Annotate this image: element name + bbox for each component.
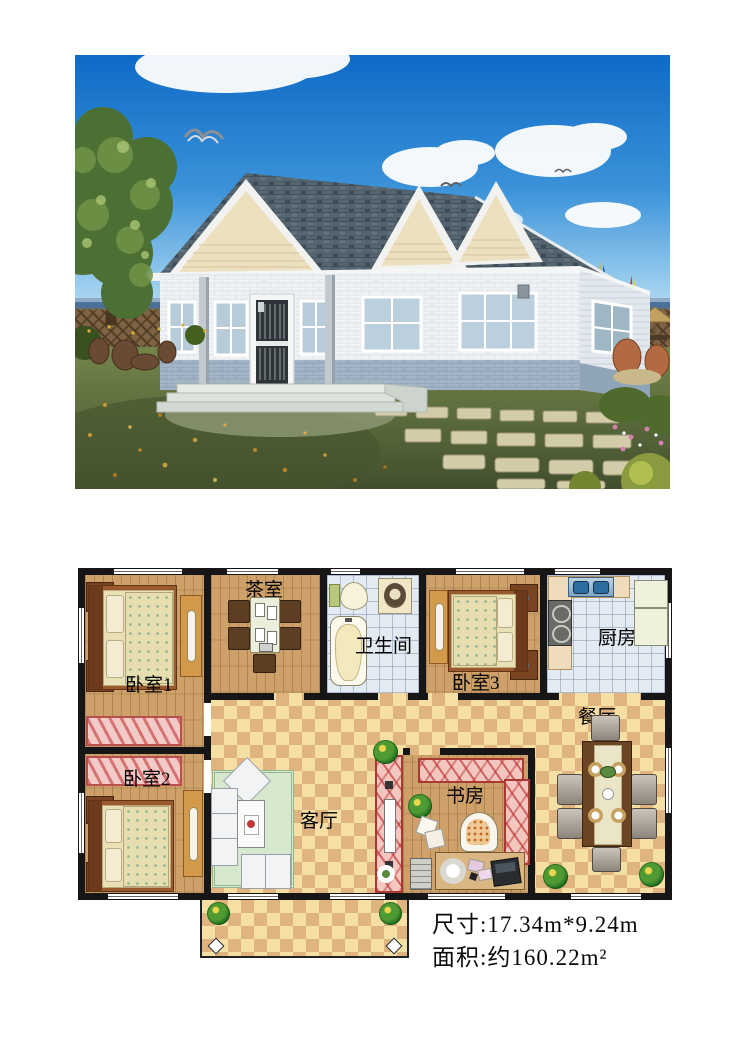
sofa — [211, 788, 238, 866]
stove — [548, 600, 572, 646]
room-label-bedroom1: 卧室1 — [125, 670, 173, 697]
house-number-plaque — [518, 285, 529, 298]
chair — [279, 600, 301, 623]
window — [227, 568, 278, 575]
front-door — [250, 294, 294, 388]
desk-chair — [440, 858, 466, 884]
area-caption: 面积:约160.22m² — [432, 938, 607, 972]
potted-plant — [408, 794, 432, 818]
window — [78, 608, 85, 663]
house-photo — [75, 55, 670, 489]
entry-steps — [157, 384, 427, 412]
bed — [448, 590, 528, 672]
dining-table — [582, 741, 632, 847]
window — [665, 748, 672, 813]
window — [108, 893, 178, 900]
window — [331, 568, 360, 575]
dining-chair — [557, 774, 583, 805]
tea-table — [250, 597, 280, 653]
potted-plant — [543, 864, 568, 889]
sofa-loveseat — [241, 854, 291, 889]
dining-chair — [591, 715, 620, 741]
entry-porch — [200, 900, 409, 958]
potted-plant — [379, 902, 402, 925]
porch-door — [228, 893, 278, 900]
bed — [88, 800, 174, 892]
armchair — [460, 812, 498, 852]
window — [428, 893, 505, 900]
dimensions-caption: 尺寸:17.34m*9.24m — [432, 905, 639, 939]
potted-plant — [373, 740, 398, 764]
dining-chair — [592, 847, 621, 872]
potted-plant — [207, 902, 230, 925]
wardrobe — [180, 595, 202, 677]
chair — [253, 654, 276, 673]
side-shelf — [410, 858, 432, 890]
bathroom-cabinet — [329, 584, 340, 607]
potted-plant — [639, 862, 664, 887]
coffee-table — [237, 800, 265, 848]
room-label-living: 客厅 — [300, 806, 338, 833]
rug — [86, 716, 182, 746]
dining-chair — [631, 774, 657, 805]
floor-plan: 卧室1 卧室2 茶室 — [78, 568, 672, 900]
kitchen-sink — [568, 577, 614, 597]
room-label-kitchen: 厨房 — [598, 623, 636, 650]
window — [114, 568, 182, 575]
room-label-bedroom3: 卧室3 — [452, 668, 500, 695]
toilet — [340, 582, 368, 610]
dining-chair — [557, 808, 583, 839]
column-footing — [386, 938, 403, 955]
listing-page: 卧室1 卧室2 茶室 — [0, 0, 745, 1053]
window — [571, 893, 641, 900]
chair — [279, 627, 301, 650]
window — [456, 568, 524, 575]
wardrobe — [183, 790, 203, 877]
fridge — [634, 580, 668, 646]
room-label-bathroom: 卫生间 — [355, 631, 412, 658]
column-footing — [208, 938, 225, 955]
window — [78, 793, 85, 853]
room-label-study: 书房 — [446, 781, 484, 808]
room-label-bedroom2: 卧室2 — [123, 764, 171, 791]
chair — [228, 600, 250, 623]
window — [555, 568, 600, 575]
laptop-icon — [490, 857, 521, 887]
floor-pillows — [424, 828, 445, 849]
chair — [228, 627, 250, 650]
sink — [378, 578, 412, 614]
dining-chair — [631, 808, 657, 839]
porch-door — [330, 893, 385, 900]
wardrobe — [429, 590, 448, 664]
decor-plate — [377, 865, 395, 883]
